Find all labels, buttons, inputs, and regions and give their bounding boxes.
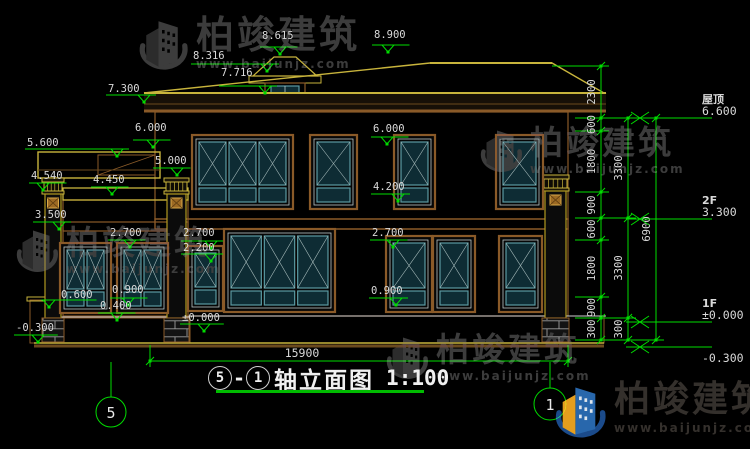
svg-text:0.400: 0.400 [100,300,132,312]
elevation-marker: 5.600 [25,137,129,158]
svg-text:900: 900 [586,298,598,317]
main-roof [144,63,604,93]
belt-course [155,219,568,229]
axis-bubble-left: 5 [96,362,126,427]
svg-text:±0.000: ±0.000 [702,308,744,322]
svg-text:3300: 3300 [613,155,625,180]
svg-text:-0.300: -0.300 [702,351,744,365]
svg-text:2.700: 2.700 [372,227,404,239]
svg-text:6900: 6900 [641,216,653,241]
svg-text:0.600: 0.600 [61,289,93,301]
axis-bubble-left-number: 5 [106,404,115,422]
level-marker: -0.300 [626,341,744,365]
svg-text:3.300: 3.300 [702,205,737,219]
svg-text:3.500: 3.500 [35,209,67,221]
elevation-marker: 6.000 [133,122,171,149]
svg-text:7.300: 7.300 [108,83,140,95]
svg-text:3300: 3300 [613,255,625,280]
elevation-marker: 5.000 [153,155,191,177]
svg-text:2300: 2300 [586,79,598,104]
total-width-dimension: 15900 [285,346,320,360]
svg-text:5.000: 5.000 [155,155,187,167]
svg-text:600: 600 [586,115,598,134]
svg-text:4.450: 4.450 [93,174,125,186]
axis-bubble-right-number: 1 [545,396,554,414]
svg-text:300: 300 [586,320,598,339]
eave-fascia [144,93,606,112]
annotations: 8.6158.3167.7168.9007.3006.0005.6005.000… [14,29,744,365]
svg-text:2.700: 2.700 [110,227,142,239]
svg-text:300: 300 [613,320,625,339]
svg-text:4.200: 4.200 [373,181,405,193]
svg-text:1800: 1800 [586,149,598,174]
svg-text:0.900: 0.900 [112,284,144,296]
svg-text:5.600: 5.600 [27,137,59,149]
dimension-chain: 33003300300 [602,114,636,344]
axis-bubble-right: 1 [534,362,566,420]
base-plinth [176,316,604,343]
window [310,135,357,209]
svg-text:2.200: 2.200 [183,242,215,254]
elevation-marker: 8.615 [260,30,298,56]
title-underline [216,390,424,393]
title-axis-end: 1 [246,366,270,390]
window [499,236,542,312]
svg-text:8.316: 8.316 [193,50,225,62]
svg-text:4.540: 4.540 [31,170,63,182]
window [433,236,475,312]
elevation-marker: 8.900 [372,29,410,54]
svg-text:6.000: 6.000 [373,123,405,135]
svg-text:6.600: 6.600 [702,104,737,118]
svg-text:900: 900 [586,196,598,215]
svg-text:6.000: 6.000 [135,122,167,134]
title-axis-start: 5 [208,366,232,390]
window [192,135,293,209]
svg-text:8.900: 8.900 [374,29,406,41]
svg-text:1800: 1800 [586,256,598,281]
window [224,229,335,312]
title-dash: - [233,366,245,390]
svg-text:-0.300: -0.300 [16,322,54,334]
svg-text:0.900: 0.900 [371,285,403,297]
level-marker: 屋顶6.600 [626,93,737,124]
dimension-chain: 6900 [630,114,664,344]
pilaster [542,175,569,342]
svg-text:7.716: 7.716 [221,67,253,79]
cad-viewport: 15900 5 1 8.6158.3167.7168.9007.3006.000… [0,0,750,449]
window [496,135,543,209]
title-scale: 1:100 [386,366,449,390]
level-marker: 1F±0.000 [626,297,744,328]
svg-text:±0.000: ±0.000 [182,312,220,324]
window [188,246,223,311]
elevation-marker: 4.450 [91,174,129,196]
svg-text:600: 600 [586,220,598,239]
svg-text:2.700: 2.700 [183,227,215,239]
level-marker: 2F3.300 [626,194,737,225]
svg-text:8.615: 8.615 [262,30,294,42]
